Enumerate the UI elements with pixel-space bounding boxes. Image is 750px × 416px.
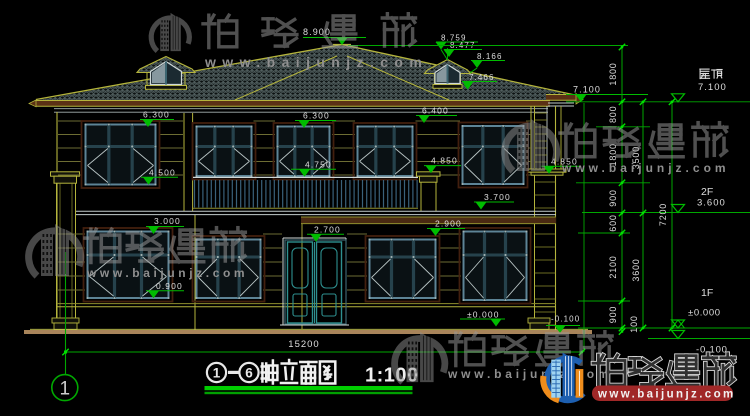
- svg-text:www.baijunjz.com: www.baijunjz.com: [204, 54, 428, 70]
- svg-text:-0.100: -0.100: [696, 345, 728, 356]
- svg-text:4.500: 4.500: [149, 168, 176, 178]
- svg-text:6: 6: [245, 366, 253, 381]
- svg-text:0.900: 0.900: [156, 281, 183, 291]
- svg-text:1: 1: [60, 379, 71, 400]
- svg-text:www.baijunjz.com: www.baijunjz.com: [86, 266, 248, 280]
- svg-text:3.600: 3.600: [697, 198, 726, 209]
- svg-text:6.400: 6.400: [422, 106, 449, 116]
- svg-text:3.700: 3.700: [484, 192, 511, 202]
- svg-text:-0.100: -0.100: [551, 315, 580, 324]
- svg-text:2.900: 2.900: [435, 219, 462, 229]
- svg-text:7200: 7200: [658, 203, 668, 226]
- svg-text:±0.000: ±0.000: [467, 310, 500, 320]
- svg-text:7.100: 7.100: [698, 82, 727, 93]
- svg-text:900: 900: [608, 306, 618, 323]
- svg-text:2100: 2100: [608, 255, 618, 278]
- svg-text:7.466: 7.466: [469, 73, 495, 82]
- svg-text:15200: 15200: [288, 339, 319, 350]
- svg-text:2F: 2F: [701, 186, 713, 198]
- svg-text:www.baijunjz.com: www.baijunjz.com: [561, 161, 730, 175]
- svg-text:6.300: 6.300: [143, 110, 170, 120]
- svg-text:1800: 1800: [608, 62, 618, 85]
- svg-text:1F: 1F: [701, 287, 713, 299]
- svg-text:2.700: 2.700: [314, 225, 341, 235]
- svg-text:900: 900: [608, 189, 618, 206]
- svg-text:4.850: 4.850: [431, 156, 458, 166]
- svg-text:8.166: 8.166: [477, 52, 503, 61]
- svg-text:www.baijunjz.com: www.baijunjz.com: [597, 389, 736, 401]
- svg-text:3.000: 3.000: [154, 216, 181, 226]
- svg-text:±0.000: ±0.000: [688, 308, 721, 319]
- svg-text:6.300: 6.300: [303, 111, 330, 121]
- svg-text:7.100: 7.100: [573, 85, 601, 95]
- svg-text:3600: 3600: [631, 258, 641, 281]
- svg-text:1: 1: [213, 366, 221, 381]
- svg-text:www.baijunjz.com: www.baijunjz.com: [447, 367, 612, 381]
- svg-text:800: 800: [608, 106, 618, 123]
- svg-text:600: 600: [608, 214, 618, 231]
- svg-text:4.750: 4.750: [305, 160, 332, 170]
- svg-text:100: 100: [629, 315, 639, 332]
